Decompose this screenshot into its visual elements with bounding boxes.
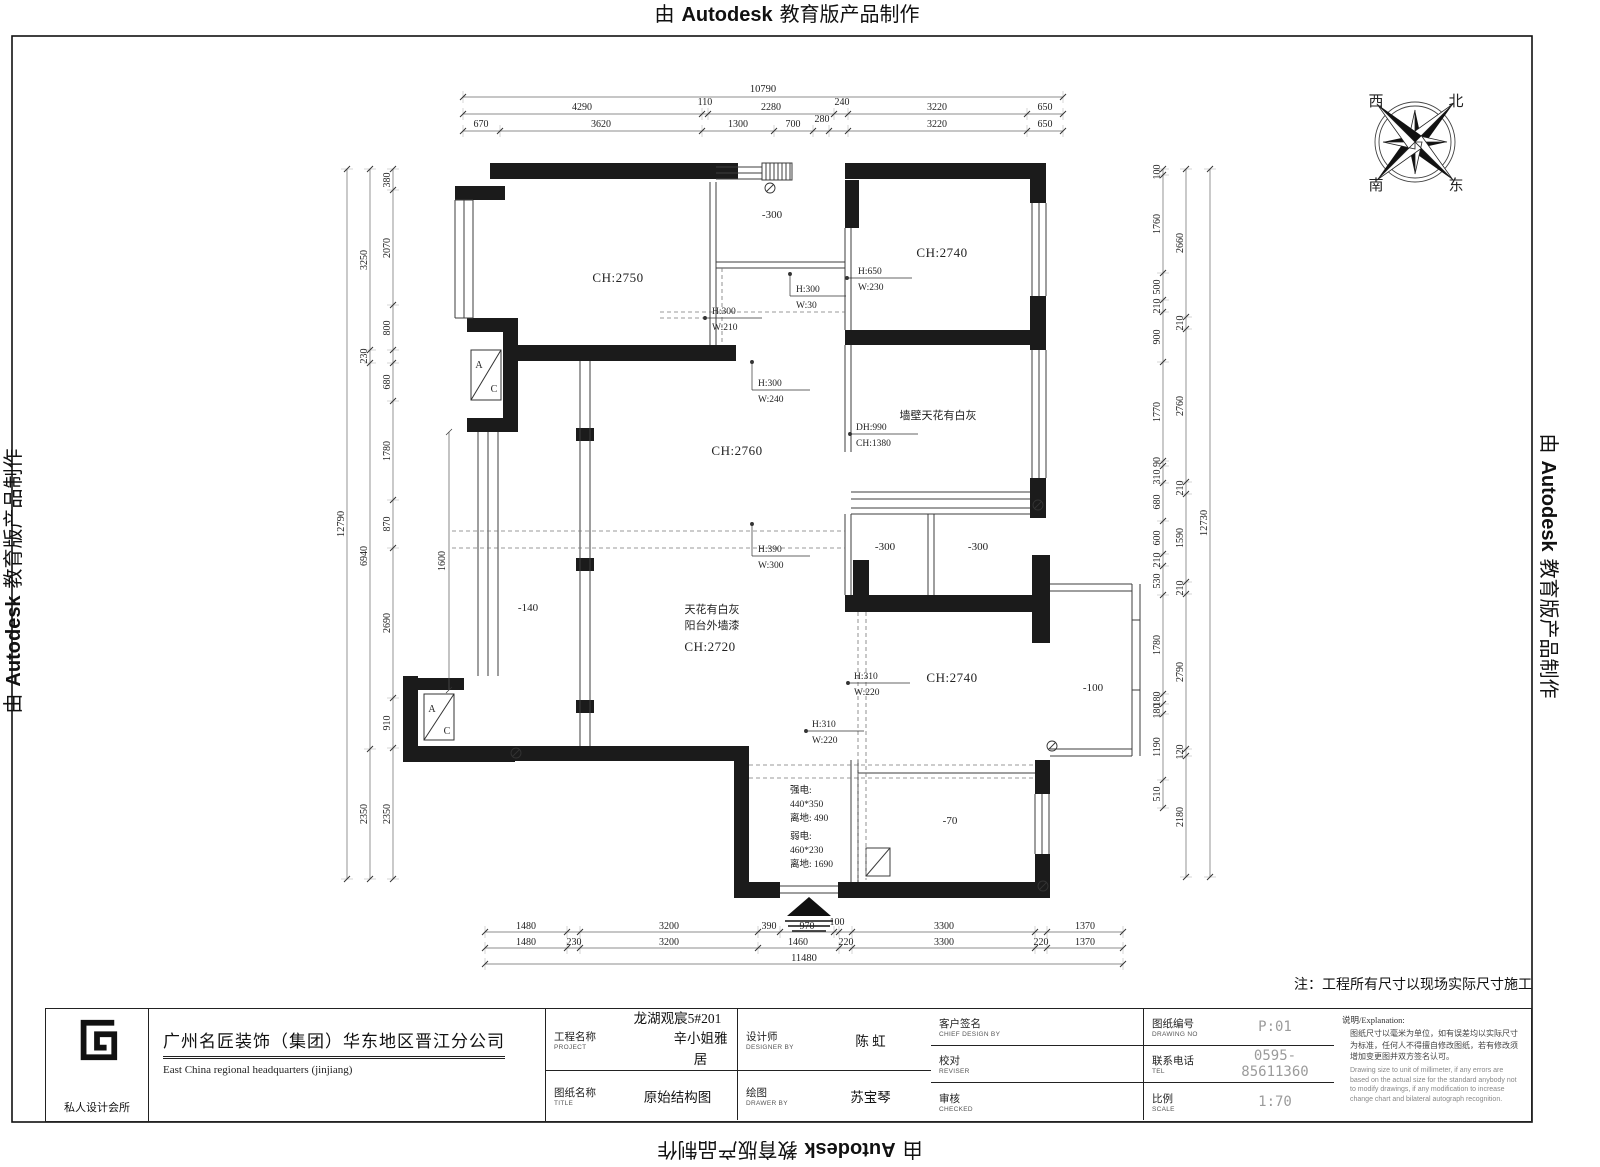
dim-label: 180 [1152, 704, 1163, 719]
dim-label: 670 [474, 119, 489, 130]
dim-label: 910 [382, 716, 393, 731]
dim-label: 1460 [788, 937, 808, 948]
dim-label: 110 [698, 97, 713, 108]
dim-label: 2660 [1175, 233, 1186, 253]
dim-label: 2070 [382, 238, 393, 258]
dim-label: 120 [1175, 745, 1186, 760]
dim-label: 2280 [761, 102, 781, 113]
dim-label: 1300 [728, 119, 748, 130]
compass-star-icon [1377, 104, 1453, 180]
dim-label: 3200 [659, 937, 679, 948]
designer-cell: 设计师DESIGNER BY 陈 虹 [738, 1009, 931, 1071]
dim-label: 220 [1034, 937, 1049, 948]
dim-label: 2350 [382, 804, 393, 824]
dim-label: 3620 [591, 119, 611, 130]
dim-label: 100 [1152, 165, 1163, 180]
sheet-title: 原始结构图 [626, 1086, 729, 1106]
tel-cell: 联系电话TEL 0595-85611360 [1144, 1046, 1334, 1083]
dim-label: 1370 [1075, 937, 1095, 948]
room-label-bedroom-top-right: CH:2740 [916, 245, 967, 260]
dim-label: 210 [1152, 299, 1163, 314]
beam-label: W:300 [758, 561, 784, 571]
note-ceiling: 天花有白灰 [685, 602, 740, 616]
scale-value: 1:70 [1224, 1094, 1326, 1110]
ac-letter: A [475, 360, 483, 371]
explanation-cn: 图纸尺寸以毫米为单位，如有误差均以实际尺寸为标准，任何人不得擅自修改图纸，若有修… [1342, 1028, 1523, 1063]
company-logo-icon [74, 1017, 120, 1063]
company-name-cn: 广州名匠装饰（集团）华东地区晋江分公司 [163, 1027, 505, 1059]
drawer-name: 苏宝琴 [818, 1086, 923, 1106]
dim-label: 650 [1038, 119, 1053, 130]
dim-label: 230 [359, 349, 370, 364]
dim-label: 11480 [791, 953, 817, 964]
level-label-bath-left: -300 [875, 541, 896, 553]
company-cell: 广州名匠装饰（集团）华东地区晋江分公司 East China regional … [149, 1009, 546, 1121]
title-block: 私人设计会所 广州名匠装饰（集团）华东地区晋江分公司 East China re… [45, 1008, 1532, 1122]
note-balcony-paint: 阳台外墙漆 [685, 618, 740, 632]
company-logo-cell: 私人设计会所 [46, 1009, 149, 1121]
tel-number: 0595-85611360 [1224, 1048, 1326, 1080]
dim-label: 210 [1175, 316, 1186, 331]
dim-label: 3220 [927, 102, 947, 113]
dim-label: 1780 [382, 441, 393, 461]
banner-suffix: 教育版产品制作 [780, 4, 920, 26]
banner-prefix: 由 [654, 4, 674, 26]
dim-label: 3200 [659, 921, 679, 932]
level-label-balcony-right: -100 [1083, 682, 1104, 694]
dim-label: 650 [1038, 102, 1053, 113]
dim-label: 2180 [1175, 807, 1186, 827]
note-weak-power-size: 460*230 [790, 846, 824, 856]
dim-label: 1480 [516, 921, 536, 932]
beam-label: CH:1380 [856, 439, 891, 449]
drawing-no: P:01 [1224, 1019, 1326, 1035]
dim-label: 90 [1152, 457, 1163, 467]
dim-label: 220 [839, 937, 854, 948]
dim-label: 100 [830, 917, 845, 928]
banner-brand: Autodesk [681, 4, 772, 26]
dim-label: 230 [567, 937, 582, 948]
beam-label: H:300 [712, 307, 736, 317]
explanation-cell: 说明/Explanation: 图纸尺寸以毫米为单位，如有误差均以实际尺寸为标准… [1334, 1009, 1531, 1121]
beam-label: W:220 [812, 736, 838, 746]
company-name-en: East China regional headquarters (jinjia… [163, 1064, 545, 1076]
ac-letter: A [428, 704, 436, 715]
beam-label: H:390 [758, 545, 782, 555]
client-signature-cell: 客户签名CHIEF DESIGN BY [931, 1009, 1144, 1046]
note-wall-ceiling: 墙壁天花有白灰 [900, 408, 977, 422]
level-label-balcony-top: -300 [762, 209, 783, 221]
beam-label: W:210 [712, 323, 738, 333]
dim-label: 380 [382, 173, 393, 188]
dim-label: 280 [815, 114, 830, 125]
dim-label: 1590 [1175, 528, 1186, 548]
logo-caption: 私人设计会所 [46, 1099, 148, 1115]
beam-label: H:310 [854, 672, 878, 682]
dim-label: 6940 [359, 546, 370, 566]
dim-label: 210 [1175, 481, 1186, 496]
checker-cell: 审核CHECKED [931, 1083, 1144, 1120]
designer-name: 陈 虹 [818, 1030, 923, 1050]
dim-label: 12790 [336, 511, 347, 537]
project-name-2: 辛小姐雅居 [626, 1029, 729, 1070]
signoff-columns: 客户签名CHIEF DESIGN BY 图纸编号DRAWING NO P:01 … [931, 1009, 1334, 1121]
dim-label: 900 [1152, 330, 1163, 345]
dim-label: 310 [1152, 470, 1163, 485]
dim-label: 240 [835, 97, 850, 108]
dim-label: 500 [1152, 280, 1163, 295]
note-strong-power-height: 离地: 490 [790, 812, 829, 824]
dim-label: 3250 [359, 250, 370, 270]
level-label-bath-right: -300 [968, 541, 989, 553]
note-strong-power-size: 440*350 [790, 800, 824, 810]
dim-label: 3220 [927, 119, 947, 130]
autodesk-banner-top: 由Autodesk教育版产品制作 [487, 2, 1087, 28]
dim-label: 1780 [1152, 635, 1163, 655]
note-strong-power: 强电: [790, 784, 812, 796]
explanation-en: Drawing size to unit of millimeter, if a… [1342, 1066, 1523, 1105]
ac-letter: C [444, 726, 451, 737]
dim-label: 700 [786, 119, 801, 130]
autodesk-banner-right: 由Autodesk教育版产品制作 [1535, 266, 1561, 866]
ac-letter: C [491, 384, 498, 395]
dim-label: 2690 [382, 613, 393, 633]
walls [403, 163, 1050, 898]
dim-label: 210 [1175, 581, 1186, 596]
dim-label: 530 [1152, 574, 1163, 589]
compass: 西 北 南 东 [1368, 93, 1463, 194]
dim-label: 2350 [359, 804, 370, 824]
reviser-cell: 校对REVISER [931, 1046, 1144, 1083]
dim-label: 10790 [750, 84, 776, 95]
room-label-balcony-ch: CH:2720 [684, 639, 735, 654]
project-cell: 工程名称PROJECT 龙湖观宸5#201辛小姐雅居 [546, 1009, 738, 1071]
dim-label: 1190 [1152, 737, 1163, 757]
beam-label: DH:990 [856, 423, 887, 433]
compass-label-south: 南 [1368, 177, 1383, 194]
room-label-living: CH:2760 [711, 443, 762, 458]
dim-label: 12730 [1199, 510, 1210, 536]
dim-label: 3300 [934, 937, 954, 948]
dim-label: 680 [382, 375, 393, 390]
explanation-heading: 说明/Explanation: [1342, 1014, 1523, 1026]
scale-cell: 比例SCALE 1:70 [1144, 1083, 1334, 1120]
room-label-bedroom-bottom-right: CH:2740 [926, 670, 977, 685]
dim-label: 1760 [1152, 214, 1163, 234]
drawing-no-cell: 图纸编号DRAWING NO P:01 [1144, 1009, 1334, 1046]
dim-label: 2790 [1175, 662, 1186, 682]
dim-label: 210 [1152, 553, 1163, 568]
site-dimension-note: 注：工程所有尺寸以现场实际尺寸施工 [1294, 974, 1532, 994]
beam-label: W:220 [854, 688, 880, 698]
dim-label: 680 [1152, 495, 1163, 510]
project-title-columns: 工程名称PROJECT 龙湖观宸5#201辛小姐雅居 设计师DESIGNER B… [546, 1009, 931, 1121]
note-weak-power: 弱电: [790, 830, 812, 842]
dim-label: 1480 [516, 937, 536, 948]
dim-label: 510 [1152, 787, 1163, 802]
drawing-sheet: 由Autodesk教育版产品制作 由Autodesk教育版产品制作 由Autod… [0, 0, 1600, 1167]
dim-label: 390 [762, 921, 777, 932]
dim-label: 1770 [1152, 402, 1163, 422]
dim-label: 1370 [1075, 921, 1095, 932]
compass-label-west: 西 [1368, 94, 1383, 110]
project-name: 龙湖观宸5#201 [626, 1009, 729, 1029]
beam-label: H:300 [796, 285, 820, 295]
drain-pipe-symbols [511, 183, 1057, 891]
beam-label: W:230 [858, 283, 884, 293]
autodesk-banner-left: 由Autodesk教育版产品制作 [1, 281, 27, 881]
room-label-bedroom-top-left: CH:2750 [592, 270, 643, 285]
compass-label-east: 东 [1448, 177, 1463, 194]
dim-label: 3300 [934, 921, 954, 932]
sheet-frame [12, 36, 1532, 1122]
autodesk-banner-bottom: 由Autodesk教育版产品制作 [490, 1136, 1090, 1162]
beam-label: H:300 [758, 379, 782, 389]
level-label-balcony-left: -140 [518, 602, 539, 614]
level-label-entry: -70 [943, 815, 958, 827]
beam-label: W:240 [758, 395, 784, 405]
dimension-chains [341, 91, 1216, 970]
dim-label: 870 [382, 517, 393, 532]
dim-label: 2760 [1175, 396, 1186, 416]
compass-label-north: 北 [1448, 93, 1463, 110]
sheet-title-cell: 图纸名称TITLE 原始结构图 [546, 1071, 738, 1120]
dim-label: 970 [800, 921, 815, 932]
drawer-cell: 绘图DRAWER BY 苏宝琴 [738, 1071, 931, 1120]
beam-label: H:650 [858, 267, 882, 277]
beam-label: H:310 [812, 720, 836, 730]
beam-label: W:30 [796, 301, 817, 311]
dim-label: 600 [1152, 531, 1163, 546]
dim-label: 4290 [572, 102, 592, 113]
dim-label: 800 [382, 321, 393, 336]
dim-label: 1600 [437, 551, 448, 571]
note-weak-power-height: 离地: 1690 [790, 858, 833, 870]
